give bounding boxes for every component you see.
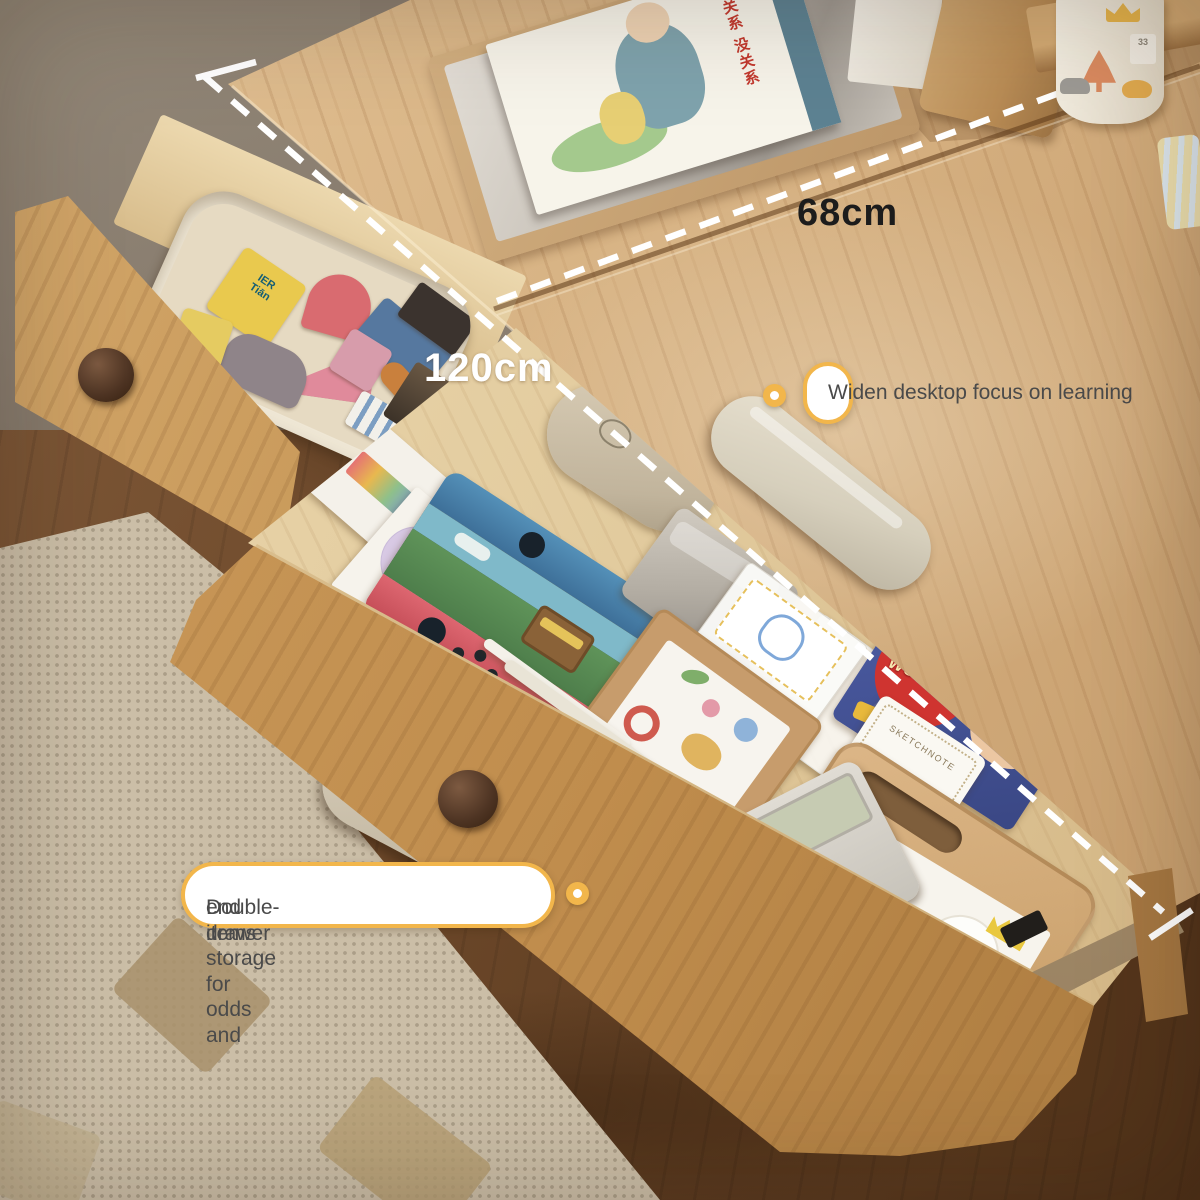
callout-dot-desktop — [763, 384, 786, 407]
measurement-lines — [0, 0, 1200, 1200]
pen-cup: 33 — [1056, 0, 1164, 124]
callout-drawer-text-line2: end items — [206, 895, 256, 946]
pen-cup-house-number: 33 — [1138, 37, 1148, 47]
product-photo-kids-desk: 没关系 没关系 33 IER Tiān — [0, 0, 1200, 1200]
pen-cup-print-house: 33 — [1130, 34, 1156, 64]
callout-desktop: Widen desktop focus on learning — [803, 362, 853, 424]
width-dashed-line — [205, 77, 1163, 912]
pen-cup-print-umbrella — [1122, 80, 1152, 98]
depth-measurement-label: 68cm — [797, 192, 898, 235]
pen-cup-print-car — [1060, 78, 1090, 94]
pen-cup-print-crown — [1106, 2, 1140, 22]
width-line-end-tick — [1150, 910, 1192, 938]
width-measurement-label: 120cm — [424, 346, 554, 391]
callout-drawer: Double-drawer storage for odds and end i… — [181, 862, 555, 928]
callout-dot-drawer — [566, 882, 589, 905]
width-line-start-tick — [196, 62, 256, 78]
depth-dashed-line — [497, 92, 1062, 301]
callout-desktop-text: Widen desktop focus on learning — [828, 380, 1133, 406]
